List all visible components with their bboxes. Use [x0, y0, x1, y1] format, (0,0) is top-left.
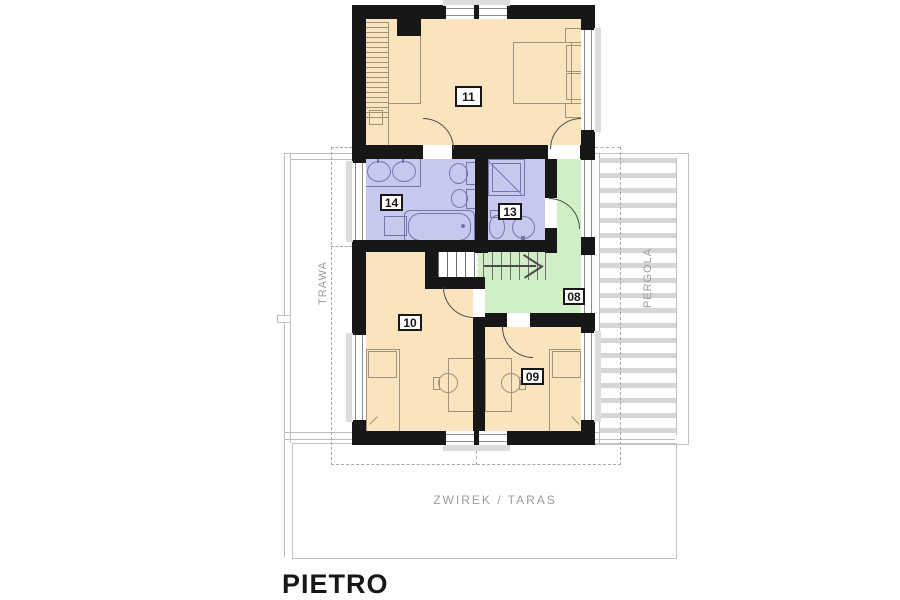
room-label-09: 09	[521, 368, 544, 385]
lawn-boundary-line	[284, 153, 285, 557]
pillow	[368, 351, 397, 378]
plan-title: PIETRO	[282, 569, 389, 600]
chair-back	[433, 377, 440, 390]
room-number: 11	[462, 90, 475, 104]
setback-dashed-line	[620, 147, 622, 465]
wall	[473, 313, 595, 327]
window-mullion	[474, 5, 479, 19]
drain	[461, 224, 465, 228]
window	[352, 163, 366, 240]
closet-partition-line	[388, 22, 389, 145]
closet-partition-line	[420, 36, 421, 103]
door-opening	[507, 313, 530, 327]
wall	[473, 317, 485, 445]
closet-partition-line	[388, 103, 421, 104]
chair	[501, 373, 521, 393]
shower-inner	[492, 163, 521, 192]
wall	[475, 145, 488, 253]
window	[581, 30, 595, 130]
room-label-10: 10	[398, 314, 422, 331]
setback-dashed-line	[331, 246, 352, 248]
lawn-annotation: TRAWA	[317, 233, 329, 333]
room-label-08: 08	[563, 288, 585, 305]
room-number: 10	[403, 316, 416, 330]
terrace-annotation: ZWIREK / TARAS	[400, 493, 590, 507]
wall	[352, 240, 557, 252]
setback-dashed-line	[331, 147, 333, 465]
window	[352, 335, 366, 420]
sink	[392, 161, 416, 182]
lawn-boundary-line	[284, 153, 352, 154]
chair	[438, 373, 458, 393]
room-label-14: 14	[380, 194, 403, 211]
room-number: 13	[503, 205, 516, 219]
tub-step	[384, 216, 407, 236]
setback-dashed-line	[595, 147, 620, 149]
shelf	[369, 110, 383, 125]
door-opening	[473, 289, 485, 317]
room-number: 09	[526, 370, 539, 384]
pergola-slats	[600, 158, 677, 435]
slab-edge-line	[284, 432, 352, 433]
room-label-11: 11	[455, 86, 482, 107]
floor-plan: 11 14 13 08 10 09 TRAWA PERGOLA ZWIREK /…	[0, 0, 900, 600]
window-sill	[594, 28, 601, 132]
lawn-boundary-line	[290, 153, 291, 443]
pillow	[552, 351, 581, 378]
window-sill	[594, 331, 601, 422]
room-number: 08	[567, 290, 580, 304]
lawn-edge-notch	[277, 315, 291, 323]
window-mullion	[474, 431, 479, 445]
window-sill	[443, 445, 510, 451]
room-number: 14	[385, 196, 398, 210]
stair-cut-line	[477, 250, 479, 280]
pergola-annotation: PERGOLA	[642, 228, 654, 328]
stair-direction-arrow	[484, 265, 536, 267]
setback-dashed-line	[331, 147, 352, 149]
window	[581, 160, 595, 237]
chimney	[397, 19, 421, 36]
sink	[367, 161, 391, 182]
wall	[473, 277, 485, 289]
wardrobe	[366, 22, 388, 120]
double-bed	[513, 42, 572, 104]
window	[581, 333, 595, 420]
room-label-13: 13	[498, 203, 522, 220]
slab-edge-line	[284, 439, 352, 440]
lawn-boundary-line	[290, 159, 352, 160]
